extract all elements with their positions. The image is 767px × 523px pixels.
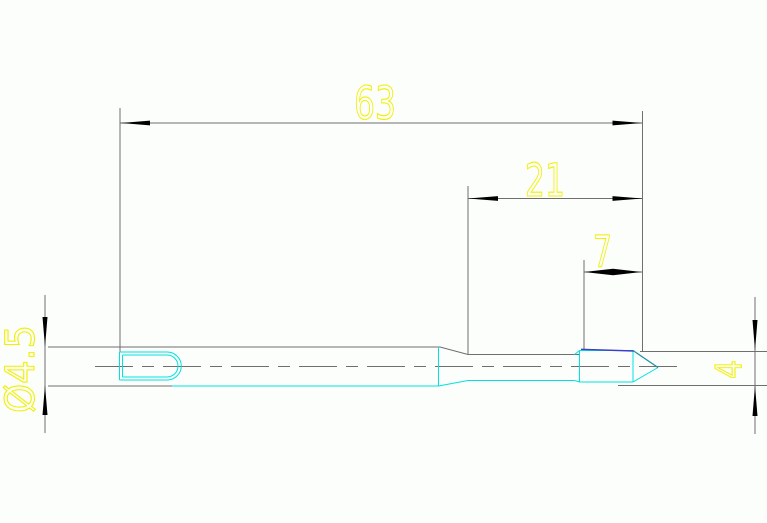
dim-text-7: 7 — [593, 227, 612, 278]
dim-text-21: 21 — [525, 154, 565, 207]
dim-text-dia45: Ø4.5 — [0, 325, 44, 413]
cad-viewport: 63 21 7 Ø4.5 4 — [0, 0, 767, 523]
dim-text-dia4: 4 — [709, 360, 750, 379]
cad-drawing: 63 21 7 Ø4.5 4 — [0, 0, 767, 523]
dim-text-63: 63 — [354, 77, 396, 130]
